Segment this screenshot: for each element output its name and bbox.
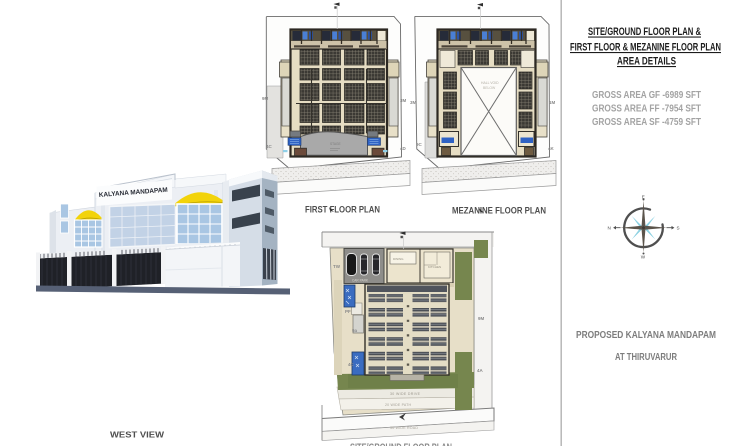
svg-text:9C: 9C: [416, 142, 423, 147]
svg-text:HALL VOID: HALL VOID: [481, 81, 499, 85]
svg-text:4C: 4C: [348, 362, 355, 367]
svg-text:4D: 4D: [400, 146, 407, 151]
svg-text:20 WIDE PATH: 20 WIDE PATH: [385, 403, 411, 407]
svg-text:3M: 3M: [410, 100, 417, 105]
svg-text:GROSS AREA FF -7954 SFT: GROSS AREA FF -7954 SFT: [592, 103, 701, 115]
svg-text:4C: 4C: [266, 144, 273, 149]
svg-text:AREA DETAILS: AREA DETAILS: [617, 56, 676, 68]
svg-text:FIRST FLOOR PLAN: FIRST FLOOR PLAN: [305, 205, 380, 216]
svg-text:CAR PARK: CAR PARK: [352, 279, 369, 283]
svg-text:PF: PF: [345, 309, 351, 314]
svg-text:BELOW: BELOW: [483, 86, 496, 90]
svg-text:GROSS AREA GF -6989 SFT: GROSS AREA GF -6989 SFT: [592, 89, 701, 101]
svg-text:STAGE: STAGE: [330, 142, 341, 146]
svg-text:SITE/GROUND FLOOR PLAN: SITE/GROUND FLOOR PLAN: [350, 443, 452, 446]
svg-text:9M: 9M: [262, 96, 269, 101]
svg-text:SITE/GROUND FLOOR PLAN &: SITE/GROUND FLOOR PLAN &: [588, 26, 701, 38]
svg-text:3M: 3M: [400, 98, 407, 103]
svg-text:FIRST FLOOR & MEZANINE FLOOR P: FIRST FLOOR & MEZANINE FLOOR PLAN: [570, 42, 721, 54]
svg-text:WEST VIEW: WEST VIEW: [110, 430, 165, 440]
svg-text:TW: TW: [333, 264, 341, 269]
svg-text:DINING: DINING: [393, 257, 404, 261]
svg-text:30 WIDE DRIVE: 30 WIDE DRIVE: [390, 392, 421, 396]
svg-text:AT THIRUVARUR: AT THIRUVARUR: [615, 352, 678, 363]
svg-text:9M: 9M: [478, 316, 485, 321]
svg-text:MEZANINE FLOOR PLAN: MEZANINE FLOOR PLAN: [452, 206, 546, 217]
svg-text:KITCHEN: KITCHEN: [428, 265, 441, 269]
svg-text:4K: 4K: [548, 146, 555, 151]
svg-text:1M: 1M: [549, 100, 556, 105]
svg-text:W: W: [641, 255, 646, 260]
svg-text:S: S: [677, 226, 680, 231]
svg-text:30 WIDE ROAD: 30 WIDE ROAD: [390, 426, 418, 430]
svg-text:9a: 9a: [352, 328, 358, 333]
svg-text:4A: 4A: [477, 368, 484, 373]
svg-text:N: N: [608, 226, 611, 231]
svg-text:GROSS AREA SF -4759 SFT: GROSS AREA SF -4759 SFT: [592, 116, 701, 128]
svg-text:PROPOSED KALYANA MANDAPAM: PROPOSED KALYANA MANDAPAM: [576, 329, 716, 341]
